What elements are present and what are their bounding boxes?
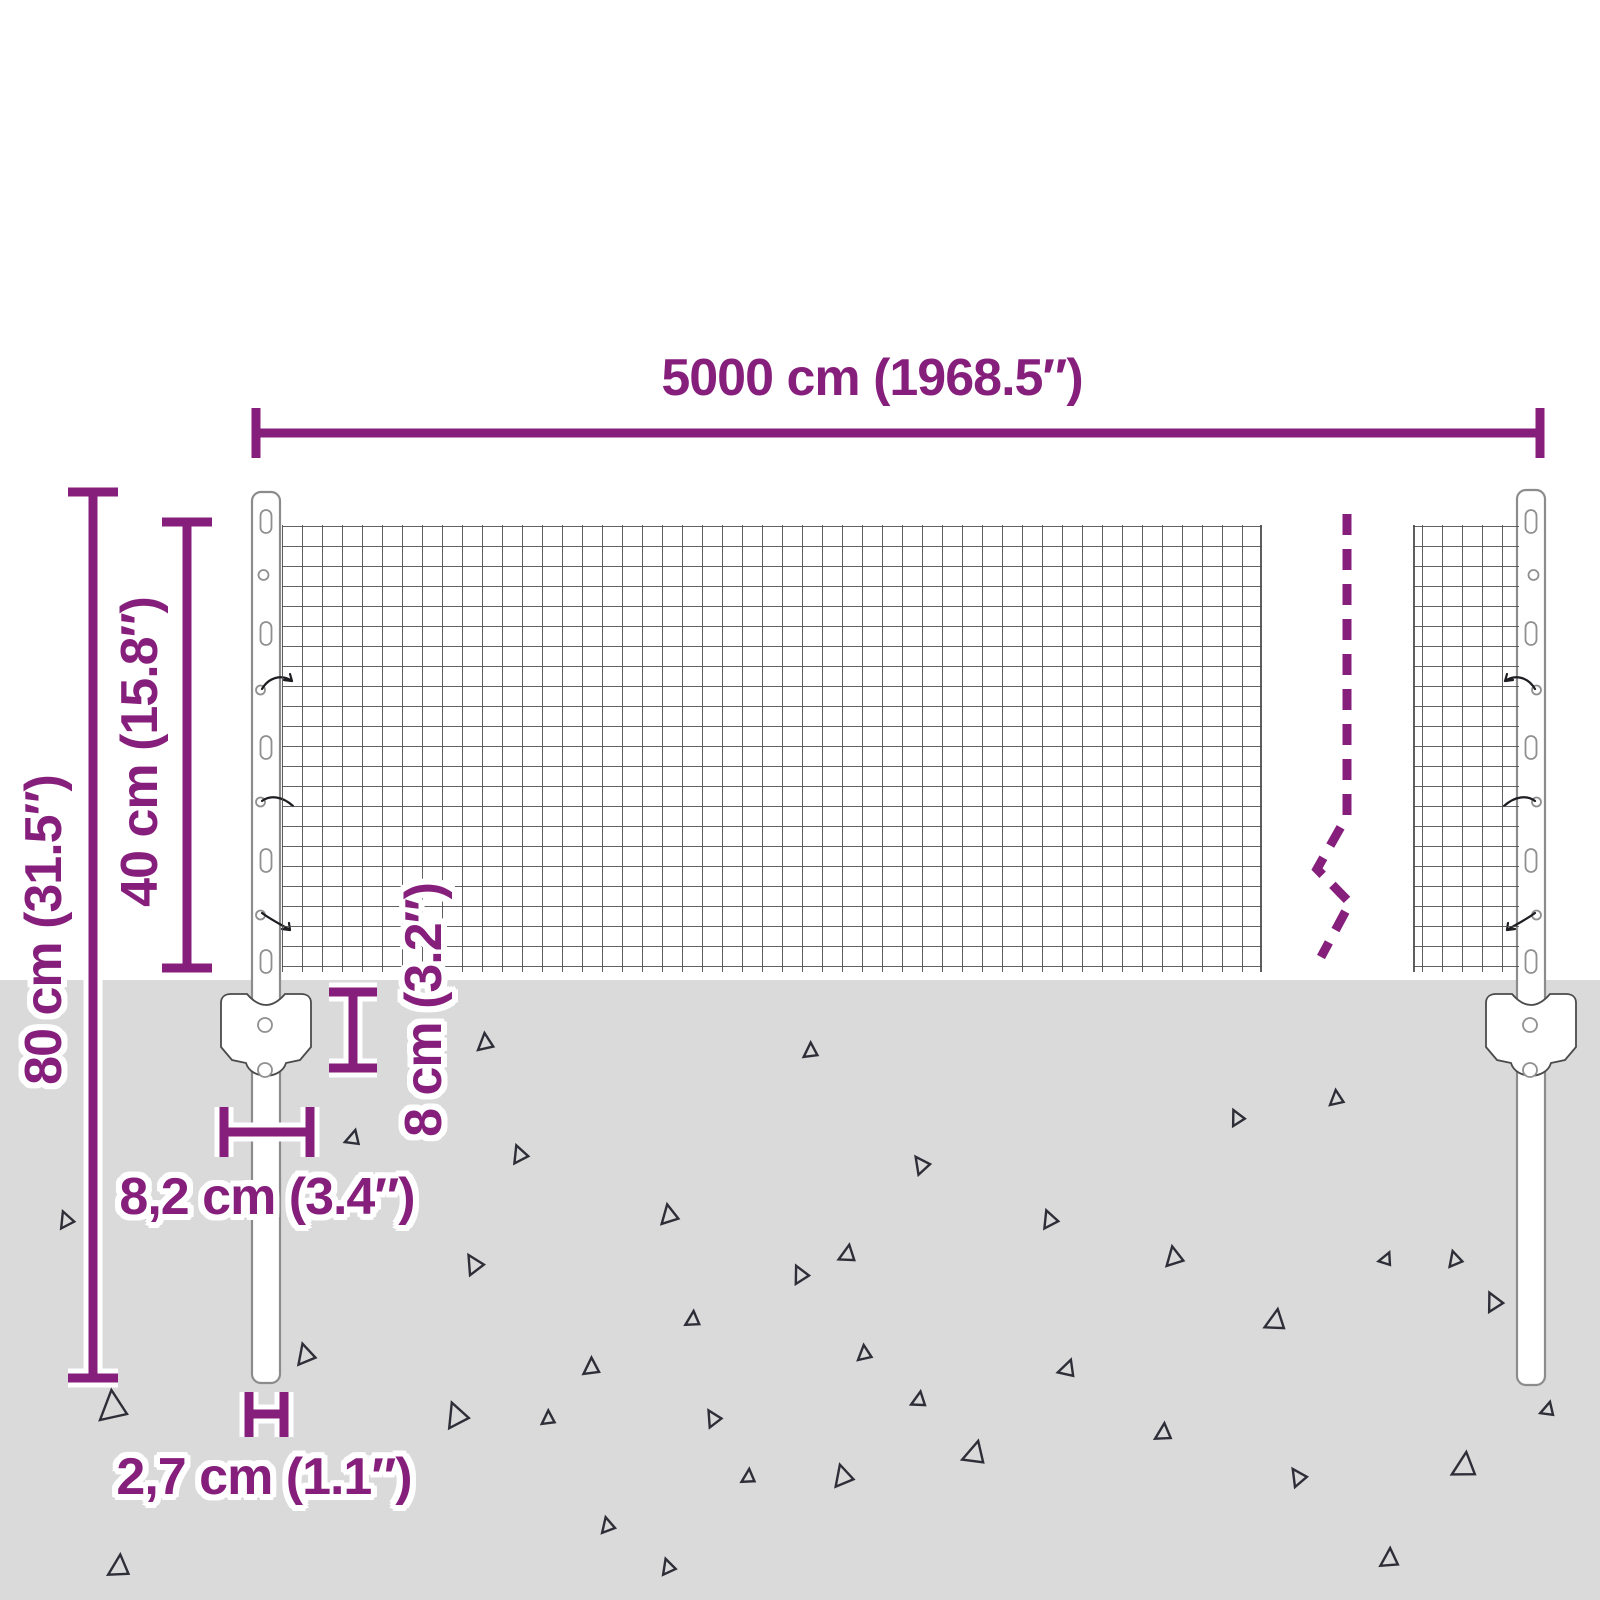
break-line bbox=[1317, 514, 1350, 957]
dim-depth-label: 8 cm (3.2″) bbox=[398, 883, 450, 1137]
ground-area bbox=[0, 980, 1600, 1600]
right-mesh-panel bbox=[1413, 525, 1519, 972]
dim-anchor-width-label: 8,2 cm (3.4″) bbox=[119, 1171, 414, 1223]
dim-mesh-height-line bbox=[162, 522, 212, 968]
fence-dimension-diagram: 5000 cm (1968.5″) 40 cm (15.8″) 80 cm (3… bbox=[0, 0, 1600, 1600]
dim-post-height-label: 80 cm (31.5″) bbox=[18, 775, 70, 1085]
dim-total-width-line bbox=[256, 408, 1540, 458]
diagram-canvas bbox=[0, 0, 1600, 1600]
dim-mesh-height-label: 40 cm (15.8″) bbox=[114, 597, 166, 907]
dim-total-width-label: 5000 cm (1968.5″) bbox=[661, 352, 1082, 404]
dim-post-diameter-label: 2,7 cm (1.1″) bbox=[116, 1451, 411, 1503]
